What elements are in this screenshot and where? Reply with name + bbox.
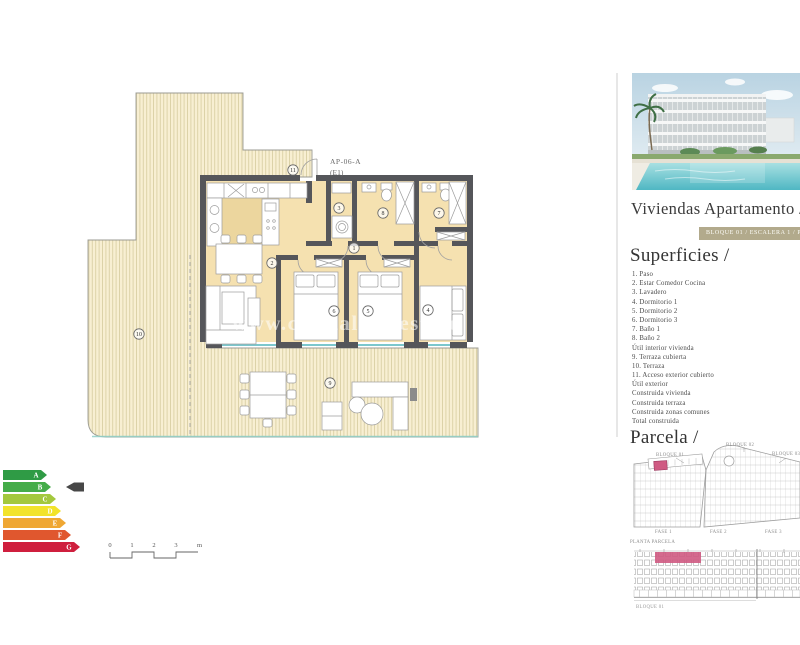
list-item: Útil exterior [632,380,714,389]
room-number-1: 1 [349,243,359,253]
planta-parcela-label: PLANTA PARCELA [630,540,675,545]
list-item: Construida terraza [632,399,714,408]
list-item: Total construida [632,417,714,426]
list-item: 9. Terraza cubierta [632,353,714,362]
room-number-10: 10 [134,329,144,339]
list-item: 8. Baño 2 [632,334,714,343]
svg-text:B: B [38,484,43,492]
room-number-2: 2 [267,258,277,268]
svg-text:3: 3 [338,206,341,212]
svg-text:3: 3 [174,542,177,549]
floor-plan: AP-06-A (E1) 1 2 3 4 5 6 7 8 9 10 11 www… [88,93,478,437]
room-number-7: 7 [434,208,444,218]
svg-text:10: 10 [136,332,142,338]
svg-text:7: 7 [438,211,441,217]
parcela-heading: Parcela / [630,427,699,449]
building-elevation: BLOQUE 01 [634,549,800,610]
room-number-9: 9 [325,378,335,388]
list-item: 2. Estar Comedor Cocina [632,279,714,288]
watermark: www.crystalrealestate [232,311,460,335]
plan-sheet: { "colors": { "badge_bg": "#b2aa8c", "hi… [0,0,800,640]
superficies-heading: Superficies / [630,245,729,267]
svg-text:8: 8 [382,211,385,217]
energy-arrow-a [3,470,47,480]
superficies-list: 1. Paso 2. Estar Comedor Cocina 3. Lavad… [632,270,714,426]
svg-text:1: 1 [353,246,356,252]
bloque-01-label: BLOQUE 01 [656,453,684,458]
svg-text:11: 11 [290,168,296,174]
list-item: 1. Paso [632,270,714,279]
svg-text:2: 2 [271,261,274,267]
bloque-03-label: BLOQUE 03 [772,452,800,457]
list-item: 4. Dormitorio 1 [632,298,714,307]
location-badge: BLOQUE 01 / ESCALERA 1 / PLANTA [699,227,800,240]
far-building [762,118,794,142]
page-title: Viviendas Apartamento / [631,199,800,219]
energy-arrow-c [3,494,56,504]
current-rating-marker [66,483,84,492]
unit-label: AP-06-A [330,157,361,166]
svg-text:1: 1 [130,542,133,549]
svg-text:2: 2 [152,542,155,549]
room-number-11: 11 [288,165,298,175]
fase-1-label: FASE 1 [655,530,672,535]
svg-text:C: C [42,496,47,504]
svg-text:E: E [53,520,58,528]
parcela-highlight-unit [654,461,668,471]
list-item: Construida zonas comunes [632,408,714,417]
scale-bar: 0 1 2 3 m [108,542,202,558]
list-item: 10. Terraza [632,362,714,371]
building-photo [632,73,800,190]
svg-text:0: 0 [108,542,111,549]
svg-text:G: G [66,544,72,552]
energy-arrow-b [3,482,51,492]
energy-rating-chart: A B C D E F G [3,470,84,552]
list-item: 11. Acceso exterior cubierto [632,371,714,380]
list-item: 3. Lavadero [632,288,714,297]
list-item: Útil interior vivienda [632,344,714,353]
fase-3-label: FASE 3 [765,530,782,535]
svg-text:F: F [58,532,62,540]
svg-text:m: m [197,542,202,549]
svg-text:9: 9 [329,381,332,387]
list-item: 7. Baño 1 [632,325,714,334]
svg-text:D: D [47,508,52,516]
apartment-building [648,96,766,154]
svg-text:A: A [33,472,38,480]
list-item: 5. Dormitorio 2 [632,307,714,316]
parcela-site-plan: BLOQUE 01 BLOQUE 02 BLOQUE 03 FASE 1 FAS… [630,443,800,545]
unit-sublabel: (E1) [330,168,344,177]
room-number-8: 8 [378,208,388,218]
fase-2-label: FASE 2 [710,530,727,535]
room-number-3: 3 [334,203,344,213]
list-item: Construida vivienda [632,389,714,398]
elevation-highlight-unit [655,552,701,563]
elevation-label: BLOQUE 01 [636,605,664,610]
list-item: 6. Dormitorio 3 [632,316,714,325]
bloque-02-label: BLOQUE 02 [726,443,754,448]
